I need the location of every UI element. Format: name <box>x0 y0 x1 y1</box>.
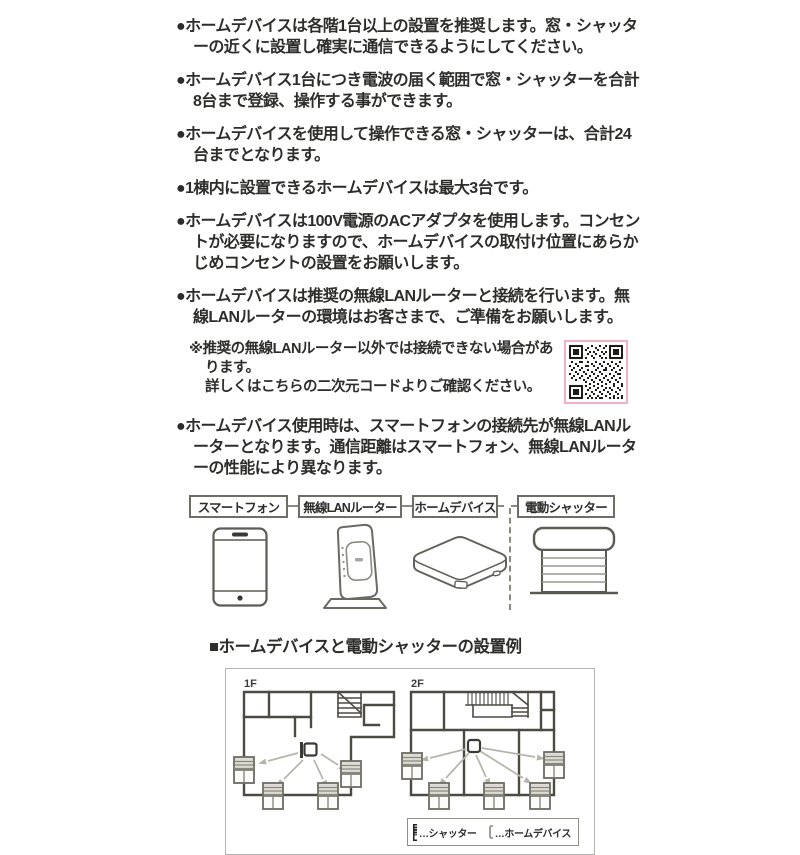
diagram-label-smartphone: スマートフォン <box>189 495 288 518</box>
bullet-text: 1棟内に設置できるホームデバイスは最大3台です。 <box>185 180 538 197</box>
floor-plan-1f <box>244 692 394 795</box>
plan-legend: …シャッター …ホームデバイス <box>407 818 579 846</box>
home-device-1f <box>305 744 317 756</box>
qr-code <box>564 340 628 404</box>
bullet-text: ホームデバイスは推奨の無線LANルーターと接続を行います。無線LANルーターの環… <box>185 288 629 326</box>
dashed-wireless-boundary-line <box>509 508 511 610</box>
document-content: ●ホームデバイスは各階1台以上の設置を推奨します。窓・シャッターの近くに設置し確… <box>176 16 642 855</box>
home-device-2f <box>468 740 480 752</box>
floor-plan-2f <box>411 692 554 795</box>
shutter-2f <box>429 783 449 809</box>
dashed-connector <box>498 505 517 507</box>
bullet-item: ●ホームデバイスは100V電源のACアダプタを使用します。コンセントが必要になり… <box>176 211 642 274</box>
note-line-2: 詳しくはこちらの二次元コードよりご確認ください。 <box>189 378 561 397</box>
diagram-label-electric-shutter: 電動シャッター <box>517 495 615 518</box>
note-text: ※推奨の無線LANルーター以外では接続できない場合があります。 詳しくはこちらの… <box>189 340 561 397</box>
shutter-1f <box>318 783 338 809</box>
bullet-marker: ● <box>176 418 185 435</box>
bullet-item: ●1棟内に設置できるホームデバイスは最大3台です。 <box>176 178 642 199</box>
bullet-text: ホームデバイスを使用して操作できる窓・シャッターは、合計24台までとなります。 <box>185 126 631 164</box>
shutter-1f <box>263 783 283 809</box>
bullet-text: ホームデバイス1台につき電波の届く範囲で窓・シャッターを合計8台まで登録、操作す… <box>185 72 639 110</box>
section-heading: ■ホームデバイスと電動シャッターの設置例 <box>209 633 642 657</box>
qr-code-icon <box>567 343 625 401</box>
bullet-item: ●ホームデバイス使用時は、スマートフォンの接続先が無線LANルーターとなります。… <box>176 416 642 479</box>
bullet-item: ●ホームデバイスは推奨の無線LANルーターと接続を行います。無線LANルーターの… <box>176 286 642 328</box>
dashed-connector <box>402 505 412 507</box>
dashed-connector <box>288 505 298 507</box>
smartphone-icon <box>212 527 268 607</box>
bullet-item: ●ホームデバイス1台につき電波の届く範囲で窓・シャッターを合計8台まで登録、操作… <box>176 70 642 112</box>
legend-label-shutter: …シャッター <box>419 825 477 840</box>
connection-diagram: スマートフォン 無線LANルーター ホームデバイス 電動シャッター <box>176 495 642 619</box>
shutter-1f <box>341 761 361 787</box>
bullet-item: ●ホームデバイスは各階1台以上の設置を推奨します。窓・シャッターの近くに設置し確… <box>176 16 642 58</box>
bullet-marker: ● <box>176 180 185 197</box>
shutter-2f <box>530 783 550 809</box>
bullet-text: ホームデバイス使用時は、スマートフォンの接続先が無線LANルーターとなります。通… <box>185 418 636 477</box>
diagram-label-home-device: ホームデバイス <box>412 495 498 518</box>
electric-shutter-icon <box>528 526 620 602</box>
shutter-2f <box>544 752 564 778</box>
bullet-text: ホームデバイスは100V電源のACアダプタを使用します。コンセントが必要になりま… <box>185 213 640 272</box>
note-line-1: ※推奨の無線LANルーター以外では接続できない場合があります。 <box>189 340 561 378</box>
bullet-text: ホームデバイスは各階1台以上の設置を推奨します。窓・シャッターの近くに設置し確実… <box>185 18 637 56</box>
bullet-marker: ● <box>176 213 185 230</box>
note-marker: ※ <box>189 341 203 357</box>
floor-label-2f: 2F <box>411 678 424 690</box>
bullet-marker: ● <box>176 18 185 35</box>
home-device-icon <box>413 535 507 607</box>
bullet-marker: ● <box>176 126 185 143</box>
legend-label-home-device: …ホームデバイス <box>495 825 571 840</box>
shutter-2f <box>484 783 504 809</box>
diagram-label-wireless-router: 無線LANルーター <box>298 495 402 518</box>
wireless-router-icon <box>316 522 394 612</box>
shutter-1f <box>234 757 254 783</box>
home-device-icon <box>489 825 493 839</box>
note-section: ※推奨の無線LANルーター以外では接続できない場合があります。 詳しくはこちらの… <box>189 340 642 404</box>
bullet-marker: ● <box>176 288 185 305</box>
installation-example-box: 1F <box>225 668 595 855</box>
bullet-item: ●ホームデバイスを使用して操作できる窓・シャッターは、合計24台までとなります。 <box>176 124 642 166</box>
floor-label-1f: 1F <box>244 678 257 690</box>
bullet-marker: ● <box>176 72 185 89</box>
shutter-2f <box>402 753 422 779</box>
shutter-icon <box>413 824 417 841</box>
